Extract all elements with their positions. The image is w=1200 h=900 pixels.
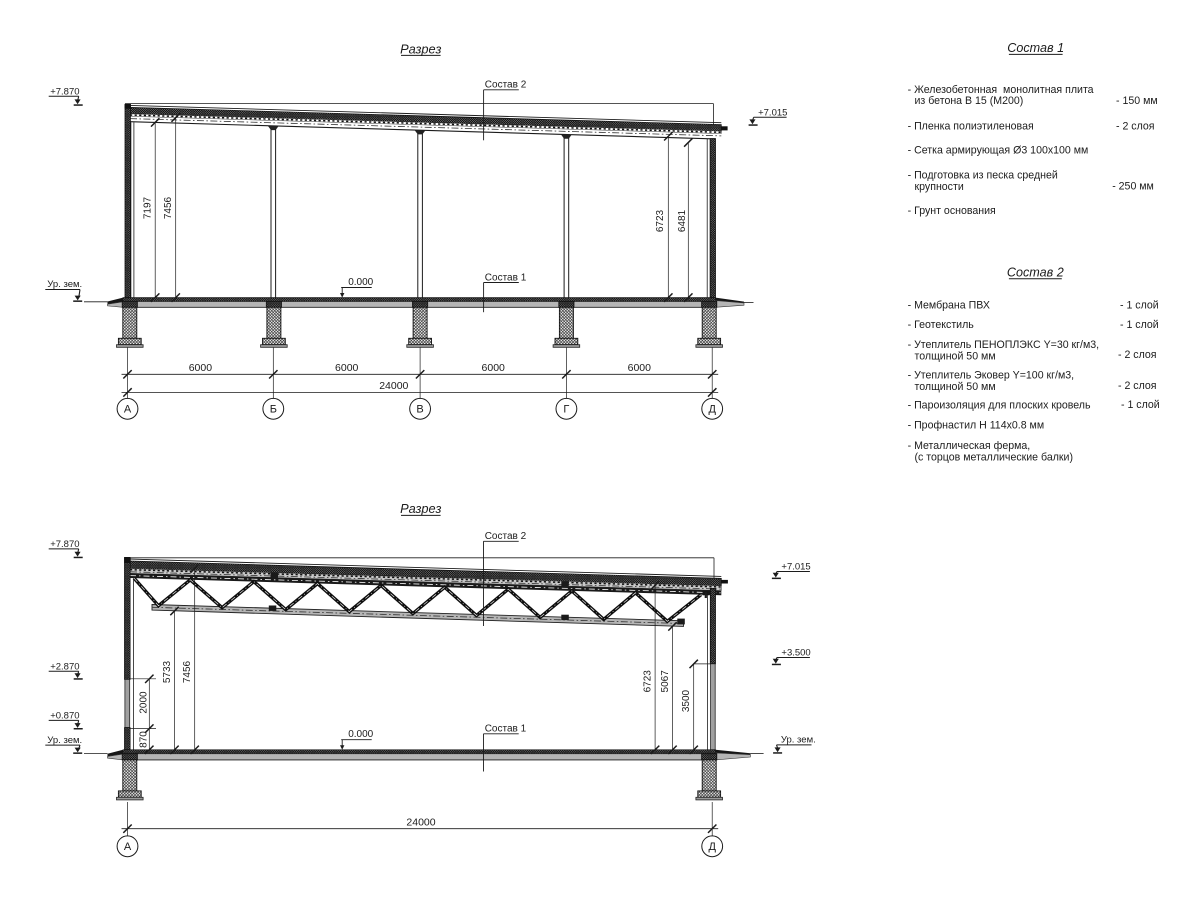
svg-text:- Утеплитель ПЕНОПЛЭКС Y=30 кг: - Утеплитель ПЕНОПЛЭКС Y=30 кг/м3, [908,339,1100,351]
svg-text:толщиной 50 мм: толщиной 50 мм [915,381,996,393]
svg-text:Разрез: Разрез [400,501,441,516]
svg-text:2000: 2000 [138,691,149,714]
svg-text:+0.870: +0.870 [50,710,79,721]
svg-text:24000: 24000 [379,380,408,392]
svg-text:6000: 6000 [189,362,213,374]
svg-text:Г: Г [563,404,569,416]
svg-text:Ур. зем.: Ур. зем. [47,735,82,746]
svg-text:870: 870 [138,731,149,748]
svg-text:- Пленка полиэтиленовая: - Пленка полиэтиленовая [908,121,1034,133]
svg-text:+2.870: +2.870 [50,661,79,672]
svg-text:- 250 мм: - 250 мм [1112,181,1154,193]
svg-text:- 1 слой: - 1 слой [1120,300,1159,312]
svg-text:А: А [124,404,132,416]
svg-text:6723: 6723 [642,670,653,693]
svg-text:из бетона В 15 (М200): из бетона В 15 (М200) [915,95,1024,107]
svg-text:Состав 1: Состав 1 [485,724,527,735]
svg-text:- Геотекстиль: - Геотекстиль [908,319,975,331]
svg-text:- 2 слоя: - 2 слоя [1118,380,1157,392]
svg-text:А: А [124,841,132,853]
svg-text:6000: 6000 [628,362,652,374]
svg-text:+7.870: +7.870 [50,86,79,97]
svg-text:7456: 7456 [182,660,193,683]
svg-text:Состав 1: Состав 1 [1007,41,1064,55]
svg-text:- 2 слоя: - 2 слоя [1116,121,1155,133]
svg-text:Д: Д [708,404,716,416]
svg-text:- Металлическая ферма,: - Металлическая ферма, [908,440,1031,452]
svg-text:- Профнастил Н 114х0.8 мм: - Профнастил Н 114х0.8 мм [908,420,1045,432]
svg-text:- 1 слой: - 1 слой [1121,399,1160,411]
svg-text:В: В [416,404,423,416]
svg-text:+7.015: +7.015 [781,562,810,573]
svg-text:Состав 2: Состав 2 [485,80,527,91]
svg-text:6723: 6723 [655,209,666,232]
svg-text:+7.015: +7.015 [758,107,787,118]
svg-text:толщиной 50 мм: толщиной 50 мм [915,351,996,363]
svg-text:- 2 слоя: - 2 слоя [1118,349,1157,361]
svg-text:+7.870: +7.870 [50,539,79,550]
svg-text:7456: 7456 [163,196,174,219]
svg-text:Разрез: Разрез [400,41,441,56]
svg-text:+3.500: +3.500 [781,648,810,659]
svg-text:- Сетка армирующая Ø3 100х100: - Сетка армирующая Ø3 100х100 мм [908,144,1089,156]
svg-text:0.000: 0.000 [348,729,373,740]
svg-text:5067: 5067 [660,670,671,693]
svg-text:Б: Б [270,404,277,416]
svg-text:- Подготовка из песка средней: - Подготовка из песка средней [908,170,1058,182]
svg-text:- Железобетонная монолитная п: - Железобетонная монолитная плита [908,84,1094,96]
svg-text:7197: 7197 [143,196,154,219]
svg-text:Д: Д [708,841,716,853]
svg-text:0.000: 0.000 [348,277,373,288]
svg-text:- Грунт основания: - Грунт основания [908,205,996,217]
svg-text:- 150 мм: - 150 мм [1116,95,1158,107]
svg-text:- Утеплитель Эковер Y=100 кг/м: - Утеплитель Эковер Y=100 кг/м3, [908,370,1075,382]
svg-text:- Мембрана ПВХ: - Мембрана ПВХ [908,300,990,312]
svg-text:Состав 2: Состав 2 [1007,266,1064,280]
svg-text:Состав 1: Состав 1 [485,272,527,283]
svg-text:Состав 2: Состав 2 [485,531,527,542]
svg-text:6481: 6481 [677,209,688,232]
svg-text:6000: 6000 [482,362,506,374]
svg-text:- Пароизоляция для плоских кро: - Пароизоляция для плоских кровель [908,400,1091,412]
svg-text:- 1 слой: - 1 слой [1120,319,1159,331]
svg-text:24000: 24000 [406,816,435,828]
svg-text:Ур. зем.: Ур. зем. [781,735,816,746]
svg-text:(с торцов металлические балки): (с торцов металлические балки) [915,451,1074,463]
svg-text:5733: 5733 [162,660,173,683]
svg-text:Ур. зем.: Ур. зем. [47,279,82,290]
svg-text:3500: 3500 [681,689,692,712]
svg-text:крупности: крупности [915,181,964,193]
svg-text:6000: 6000 [335,362,359,374]
